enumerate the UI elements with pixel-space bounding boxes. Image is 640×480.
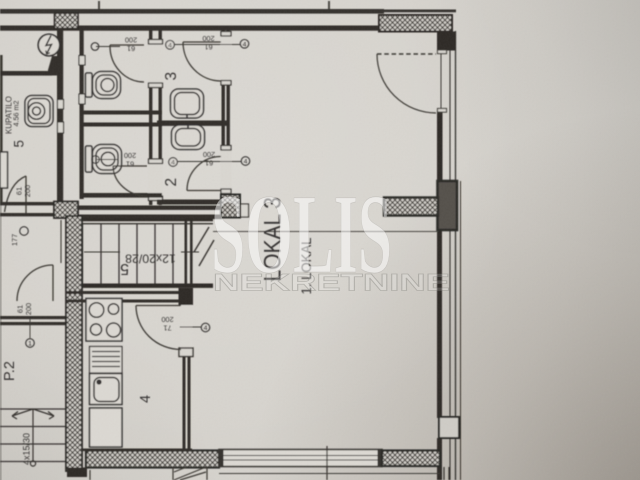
svg-text:NEKRETNINE: NEKRETNINE — [213, 270, 450, 297]
